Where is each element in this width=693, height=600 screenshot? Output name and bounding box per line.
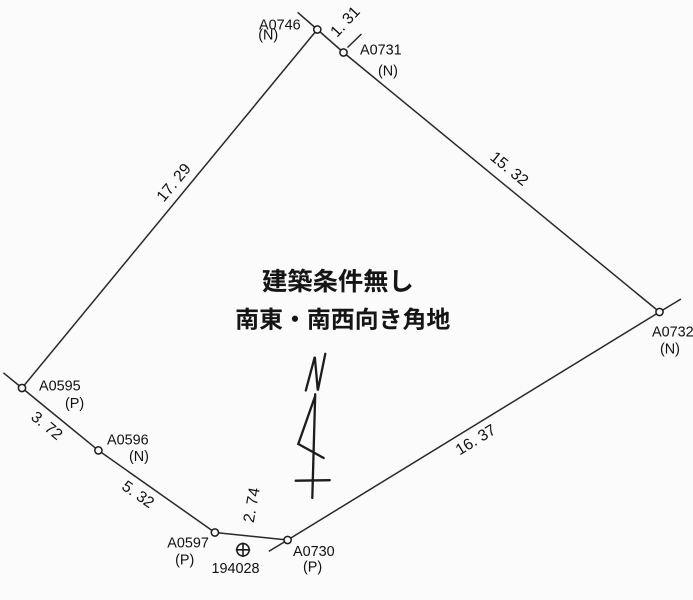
svg-text:15. 32: 15. 32 [487, 149, 532, 190]
svg-text:16. 37: 16. 37 [453, 422, 499, 459]
svg-text:5. 32: 5. 32 [118, 478, 157, 512]
svg-text:2. 74: 2. 74 [241, 486, 264, 524]
svg-text:194028: 194028 [212, 561, 260, 577]
svg-text:1. 31: 1. 31 [327, 3, 364, 40]
svg-text:A0732: A0732 [652, 324, 693, 340]
svg-text:(N): (N) [660, 342, 680, 358]
svg-text:(N): (N) [378, 64, 398, 80]
svg-text:(P): (P) [303, 560, 322, 576]
svg-text:A0597: A0597 [167, 536, 209, 552]
svg-text:A0596: A0596 [107, 433, 149, 449]
svg-text:(P): (P) [65, 396, 84, 412]
svg-text:(P): (P) [175, 553, 194, 569]
svg-text:A0730: A0730 [293, 544, 335, 560]
svg-text:3. 72: 3. 72 [27, 409, 65, 444]
svg-text:17. 29: 17. 29 [154, 160, 195, 205]
svg-text:A0595: A0595 [39, 378, 81, 394]
svg-text:(N): (N) [129, 449, 149, 465]
svg-text:A0731: A0731 [360, 43, 402, 59]
svg-text:(N): (N) [258, 28, 278, 44]
